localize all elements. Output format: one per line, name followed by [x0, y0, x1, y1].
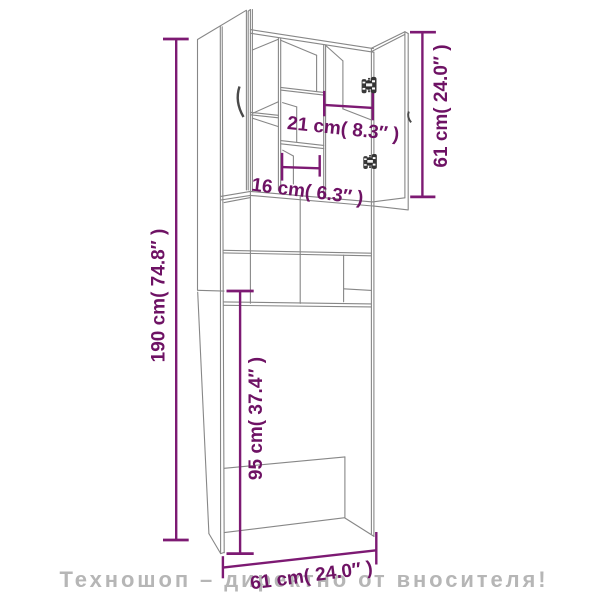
svg-text:95 cm( 37.4″ ): 95 cm( 37.4″ ): [246, 357, 267, 480]
svg-text:190 cm( 74.8″ ): 190 cm( 74.8″ ): [148, 229, 169, 363]
svg-text:61 cm( 24.0″ ): 61 cm( 24.0″ ): [431, 44, 452, 167]
